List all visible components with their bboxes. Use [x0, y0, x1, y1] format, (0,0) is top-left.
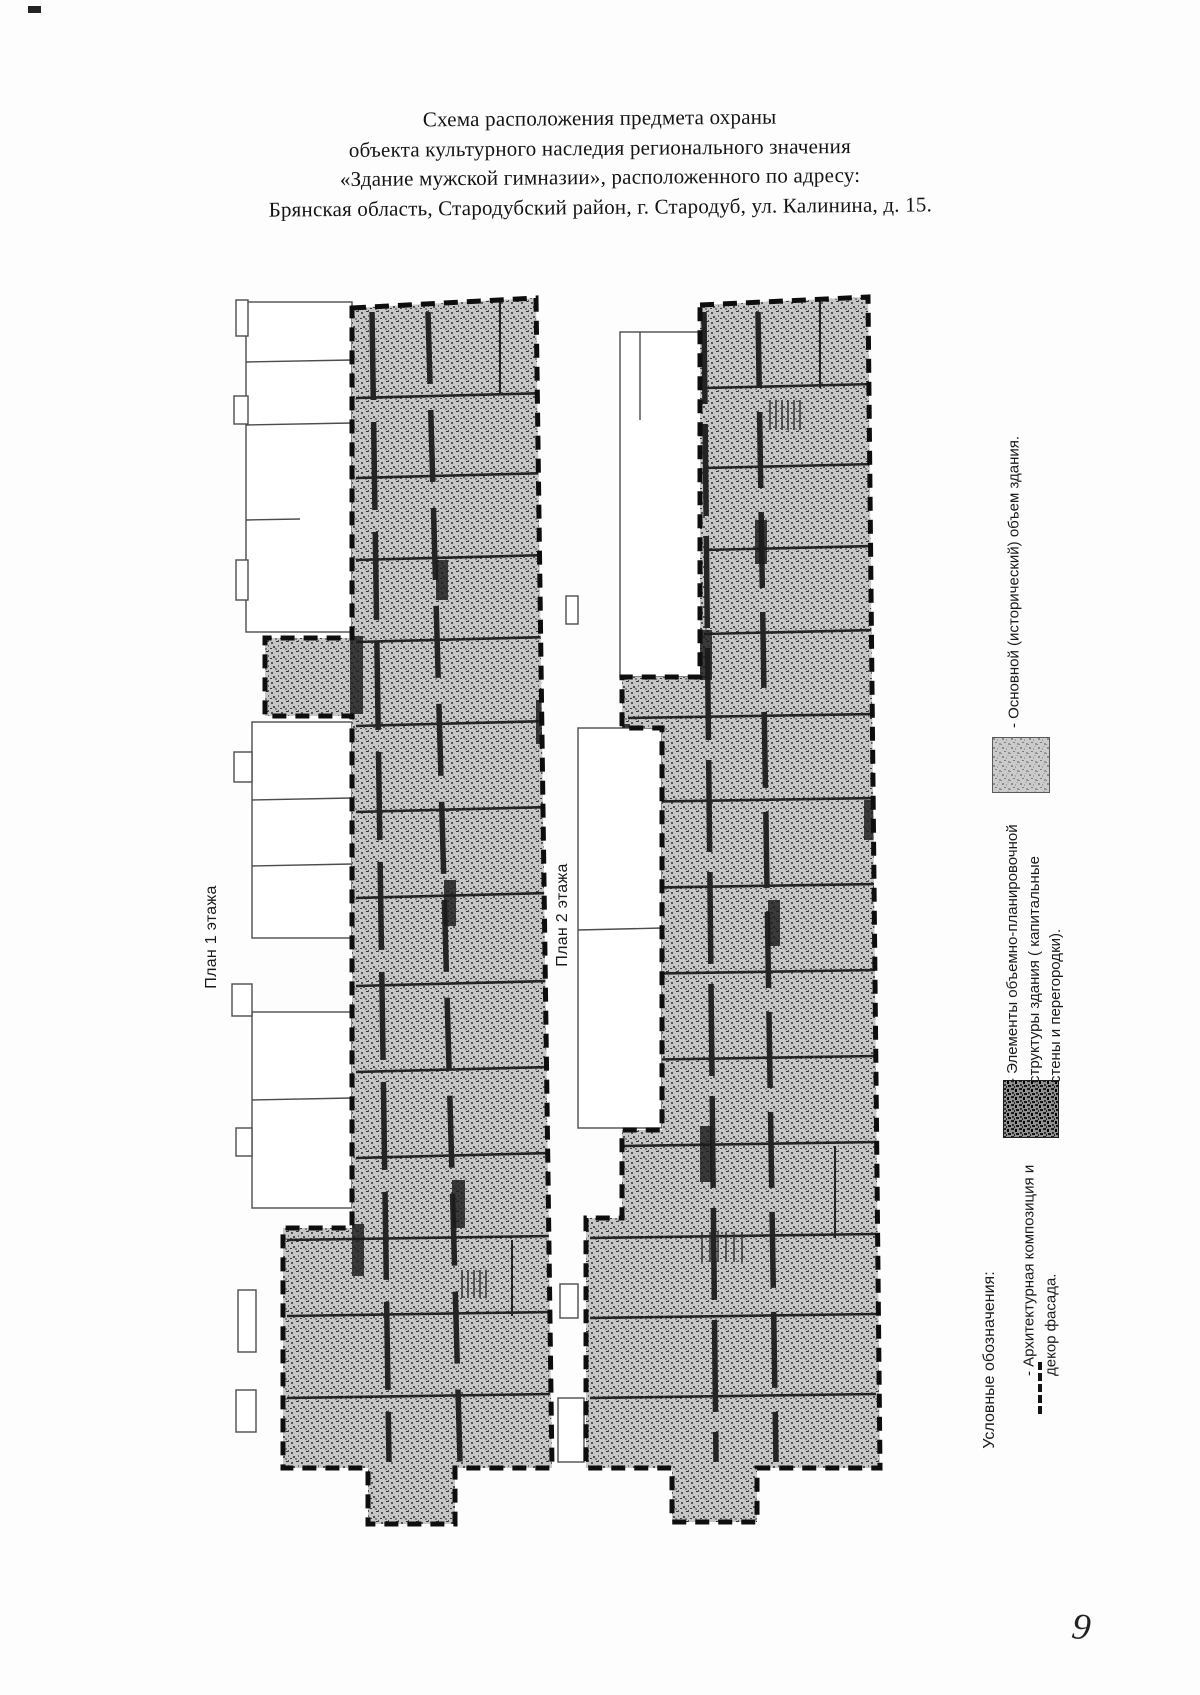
floor-plan-2-drawing: [546, 286, 894, 1538]
page-number: 9: [1069, 1605, 1093, 1650]
floor-plan-1-drawing: [228, 286, 572, 1538]
volume-stipple-swatch: [992, 737, 1050, 793]
legend-item-facade-decor: - Архитектурная композиция и декор фасад…: [1019, 1136, 1062, 1376]
legend-item-structural-walls: - Элементы объемно-планировочной структу…: [1002, 813, 1067, 1083]
document-title: Схема расположения предмета охраны объек…: [40, 100, 1161, 227]
wall-hatch-swatch: [1003, 1080, 1059, 1138]
document-page: Схема расположения предмета охраны объек…: [0, 0, 1200, 1695]
scan-artifact: [28, 6, 41, 13]
plan-1-label: План 1 этажа: [203, 885, 221, 988]
legend-item-historic-volume: - Основной (исторический) объем здания.: [1003, 436, 1025, 728]
legend-header: Условные обозначения:: [981, 1271, 999, 1448]
